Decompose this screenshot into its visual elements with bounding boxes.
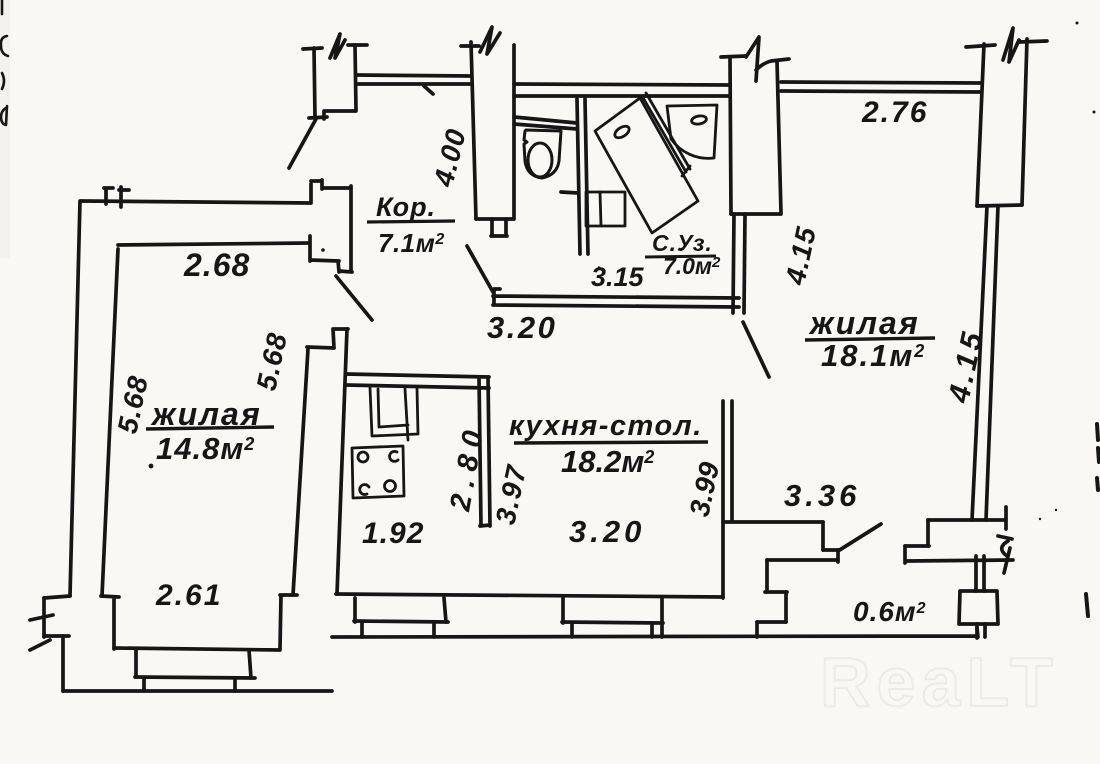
svg-text:жилая: жилая xyxy=(808,305,920,341)
svg-text:3.20: 3.20 xyxy=(487,310,557,345)
svg-text:2.76: 2.76 xyxy=(861,96,928,129)
svg-text:5.68: 5.68 xyxy=(112,373,154,437)
svg-text:7.0м2: 7.0м2 xyxy=(663,253,721,279)
svg-text:2.68: 2.68 xyxy=(183,247,250,283)
svg-text:3.99: 3.99 xyxy=(684,459,726,519)
svg-text:4.15: 4.15 xyxy=(942,326,990,407)
svg-text:3.97: 3.97 xyxy=(490,462,533,528)
svg-text:2.80: 2.80 xyxy=(444,421,491,515)
svg-text:4.15: 4.15 xyxy=(779,224,822,289)
svg-text:5.68: 5.68 xyxy=(251,330,293,394)
svg-text:2.61: 2.61 xyxy=(155,579,222,612)
svg-text:Кор.: Кор. xyxy=(376,192,436,222)
svg-text:7.1м2: 7.1м2 xyxy=(378,228,445,258)
svg-text:ReaLT: ReaLT xyxy=(820,643,1059,721)
svg-text:3.20: 3.20 xyxy=(569,514,645,549)
svg-text:кухня-стол.: кухня-стол. xyxy=(509,410,703,442)
svg-text:0.6м2: 0.6м2 xyxy=(853,596,927,627)
svg-text:18.2м2: 18.2м2 xyxy=(561,444,654,479)
svg-text:4.00: 4.00 xyxy=(428,125,472,190)
svg-text:18.1м2: 18.1м2 xyxy=(821,338,926,373)
svg-text:3.36: 3.36 xyxy=(784,478,860,513)
svg-text:14.8м2: 14.8м2 xyxy=(156,431,255,466)
svg-text:1.92: 1.92 xyxy=(362,517,424,550)
svg-text:3.15: 3.15 xyxy=(591,262,645,292)
